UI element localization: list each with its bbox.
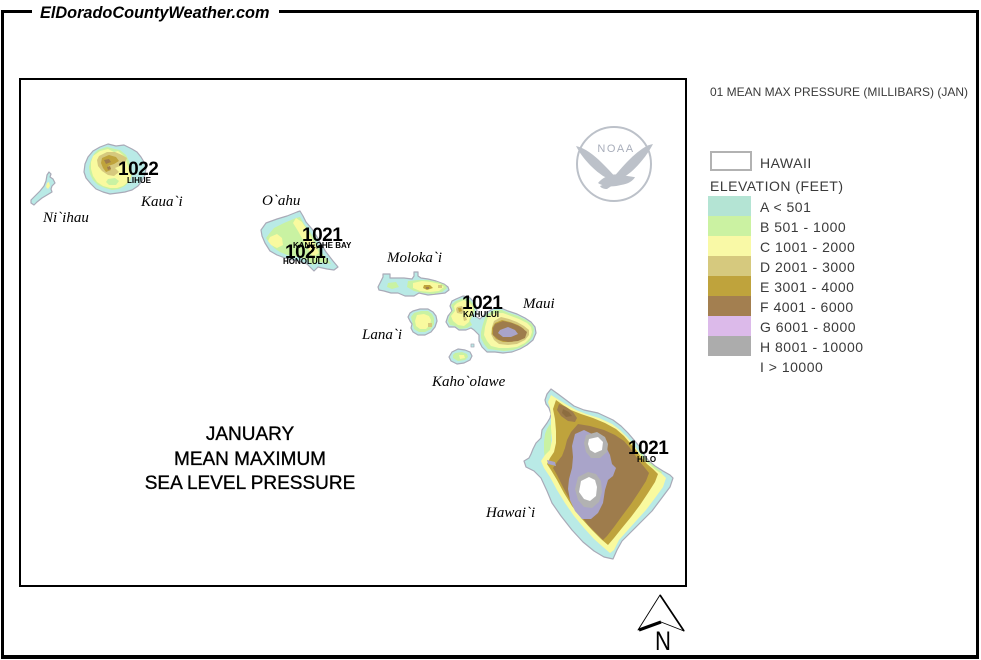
svg-text:NOAA: NOAA bbox=[597, 143, 634, 155]
svg-text:N: N bbox=[655, 627, 671, 657]
